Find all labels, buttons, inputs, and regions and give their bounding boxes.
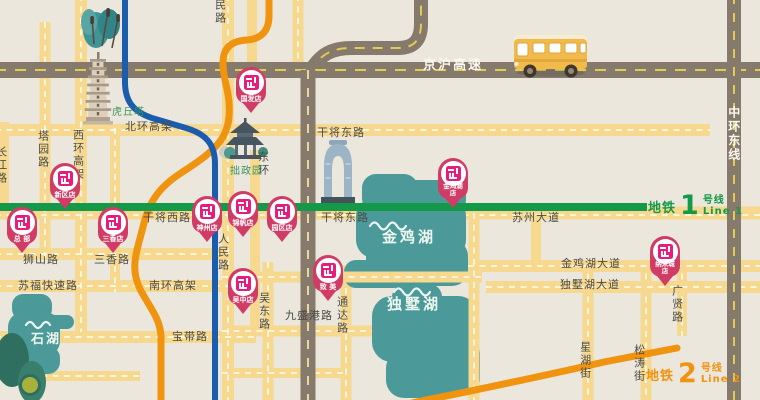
store-pin-shenzhou[interactable]: 神州店 (192, 196, 222, 242)
pin-tail (105, 243, 121, 253)
road-label-suzhou-dadao: 苏州大道 (512, 212, 560, 225)
store-logo-icon (316, 258, 341, 283)
road-label-jiusheng: 九盛港路 (285, 310, 333, 323)
store-pin-label: 国发店 (236, 96, 266, 104)
road-label-beihuan: 北环高架 (125, 121, 173, 134)
road-label-zhonghuan: 中环东线 (726, 106, 740, 162)
pin-head: 新区店 (50, 163, 80, 200)
pin-head: 神州店 (192, 196, 222, 233)
metro-2-suffix: 号线 (701, 363, 741, 374)
pin-tail (235, 304, 251, 314)
road-label-shishan: 狮山路 (23, 254, 59, 267)
metro-2-number: 2 (678, 361, 697, 387)
pin-head: 纳米城店 (650, 236, 680, 277)
pin-head: 三香店 (98, 207, 128, 244)
store-pin-sanxiang[interactable]: 三香店 (98, 207, 128, 253)
road-label-changjiang: 长江路 (0, 146, 7, 185)
metro-1-number: 1 (680, 193, 699, 219)
pin-tail (235, 227, 251, 237)
road-label-tongda: 通达路 (335, 296, 348, 335)
road-label-renmin-top: 人民路 (213, 0, 226, 25)
store-pin-label: 金鸡湖店 (438, 183, 468, 197)
store-pin-headquarters[interactable]: 总 部 (7, 207, 37, 253)
pin-head: 国发店 (236, 67, 266, 104)
store-logo-icon (270, 199, 295, 224)
pin-tail (445, 198, 461, 208)
store-pin-label: 总 部 (7, 236, 37, 244)
metro-1-english: Line 1 (703, 206, 743, 217)
map-artwork (0, 0, 760, 400)
store-pin-guofa[interactable]: 国发店 (236, 67, 266, 113)
store-logo-icon (53, 166, 78, 191)
metro-2-prefix: 地铁 (646, 365, 674, 384)
lake-label-shihu: 石湖 (31, 333, 61, 348)
store-pin-label: 神州店 (192, 225, 222, 233)
road-label-wudong: 吴东路 (257, 292, 270, 331)
road-label-tayuan: 塔园路 (36, 130, 49, 169)
landmark-label-huqiu: 虎丘塔 (112, 107, 145, 119)
store-pin-label: 纳米城店 (650, 261, 680, 275)
pin-head: 总 部 (7, 207, 37, 244)
road-label-jinghu-expwy: 京沪高速 (423, 59, 483, 74)
metro-2-english: Line 2 (701, 374, 741, 385)
metro-1-suffix: 号线 (703, 195, 743, 206)
store-logo-icon (231, 271, 256, 296)
store-pin-jinfan[interactable]: 锦帆店 (228, 191, 258, 237)
road-label-dushuhu-dadao: 独墅湖大道 (560, 279, 620, 292)
store-pin-nanomicheng[interactable]: 纳米城店 (650, 236, 680, 286)
store-logo-icon (231, 194, 256, 219)
bus-icon (514, 35, 587, 78)
pin-tail (57, 199, 73, 209)
store-pin-label: 园区店 (267, 225, 297, 233)
road-label-ganjiangxi: 干将西路 (143, 212, 191, 225)
pin-tail (14, 243, 30, 253)
road-label-sanxiang: 三香路 (94, 254, 130, 267)
pin-tail (657, 276, 673, 286)
suzhou-store-map: 人民路 京沪高速 中环东线 虎丘塔 北环高架 塔园路 西环高架 长江路 干将东路… (0, 0, 760, 400)
store-logo-icon (10, 210, 35, 235)
lake-label-jinji: 金鸡湖 (382, 229, 436, 246)
road-label-ganjiangdong-north: 干将东路 (317, 127, 365, 140)
store-pin-yuanqu[interactable]: 园区店 (267, 196, 297, 242)
pin-head: 锦帆店 (228, 191, 258, 228)
store-pin-label: 锦帆店 (228, 220, 258, 228)
store-pin-label: 致 美 (313, 284, 343, 292)
metro-1-prefix: 地铁 (648, 197, 676, 216)
store-logo-icon (239, 70, 264, 95)
road-label-baodai: 宝带路 (172, 331, 208, 344)
road-label-ganjiangdong-south: 干将东路 (321, 212, 369, 225)
road-label-guangxian: 广贤路 (670, 285, 683, 324)
road-label-sufu: 苏福快速路 (18, 280, 78, 293)
store-pin-zhimei[interactable]: 致 美 (313, 255, 343, 301)
store-logo-icon (195, 199, 220, 224)
store-pin-jinjihu[interactable]: 金鸡湖店 (438, 158, 468, 208)
pin-tail (274, 232, 290, 242)
metro-line-2-legend: 地铁 2 号线 Line 2 (646, 361, 741, 387)
road-label-songtao: 松涛街 (632, 344, 645, 383)
reeds-icon (81, 8, 120, 48)
store-pin-label: 三香店 (98, 236, 128, 244)
pin-tail (320, 291, 336, 301)
road-label-xinghu: 星湖街 (578, 341, 591, 380)
metro-line-1-legend: 地铁 1 号线 Line 1 (648, 193, 743, 219)
road-label-jinjihu-dadao: 金鸡湖大道 (561, 258, 621, 271)
pin-head: 金鸡湖店 (438, 158, 468, 199)
pin-head: 致 美 (313, 255, 343, 292)
store-pin-xinqu[interactable]: 新区店 (50, 163, 80, 209)
store-pin-wuzhong[interactable]: 吴中店 (228, 268, 258, 314)
store-pin-label: 新区店 (50, 192, 80, 200)
pin-tail (243, 103, 259, 113)
pin-tail (199, 232, 215, 242)
store-logo-icon (101, 210, 126, 235)
pin-head: 吴中店 (228, 268, 258, 305)
store-pin-label: 吴中店 (228, 297, 258, 305)
lake-label-dushu: 独墅湖 (387, 296, 441, 313)
gate-of-orient-icon (321, 140, 355, 203)
road-label-nanhuan: 南环高架 (149, 280, 197, 293)
pin-head: 园区店 (267, 196, 297, 233)
landmark-label-zhuozhengyuan: 拙政园 (230, 166, 263, 178)
